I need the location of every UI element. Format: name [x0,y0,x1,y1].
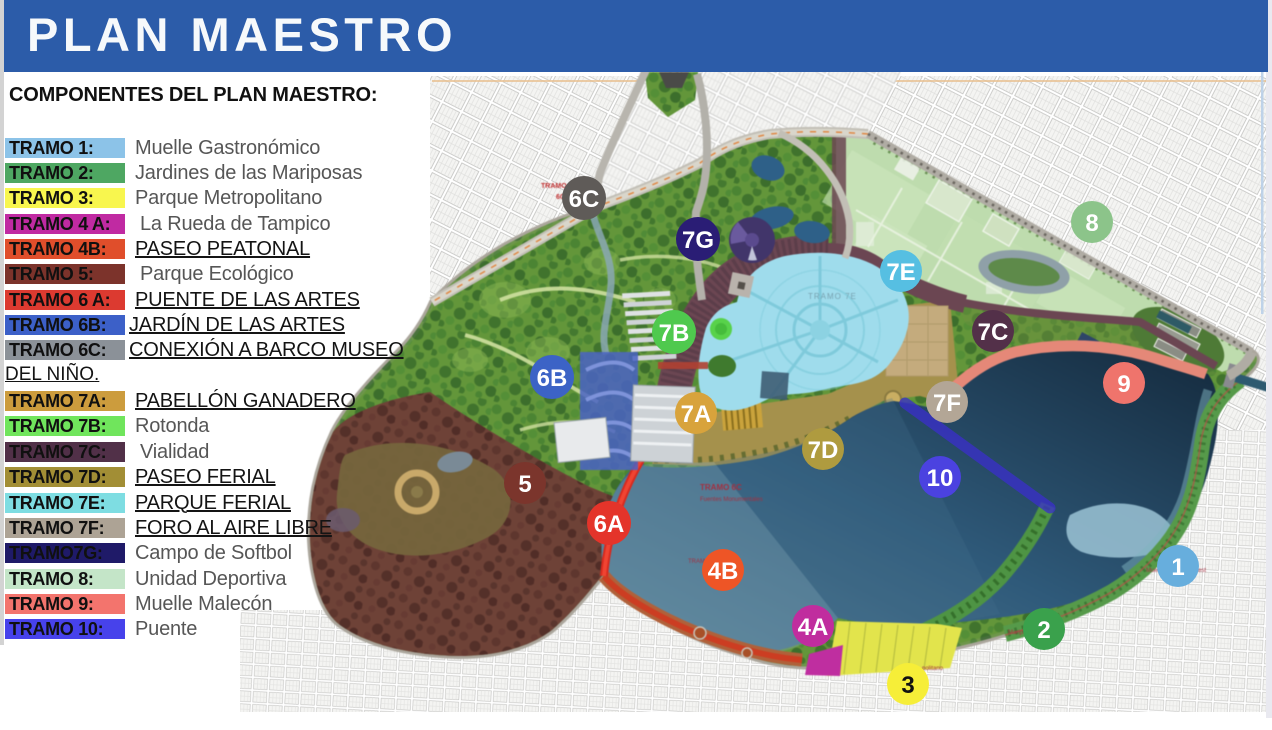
svg-text:2: 2 [1037,617,1050,644]
svg-text:7C: 7C [978,319,1009,346]
svg-text:7A: 7A [681,401,712,428]
svg-text:TRAMO 7E: TRAMO 7E [808,292,857,301]
svg-text:politano: politano [922,666,944,672]
svg-text:7D: 7D [808,437,839,464]
svg-text:3: 3 [901,672,914,699]
svg-text:7G: 7G [682,227,714,254]
svg-text:1: 1 [1171,554,1184,581]
svg-text:6B: 6B [537,365,568,392]
svg-text:7F: 7F [933,390,961,417]
svg-text:10: 10 [927,465,954,492]
svg-text:4A: 4A [798,614,829,641]
svg-text:7B: 7B [659,320,690,347]
svg-text:4B: 4B [708,558,739,585]
svg-text:7E: 7E [886,259,915,286]
svg-text:TRAMO 6C: TRAMO 6C [700,483,742,492]
svg-text:6C: 6C [569,186,600,213]
svg-text:TRAMO: TRAMO [541,183,567,190]
svg-text:5: 5 [518,471,531,498]
svg-text:9: 9 [1117,371,1130,398]
svg-text:Fuentes Monumentales: Fuentes Monumentales [700,497,763,503]
svg-text:6A: 6A [594,511,625,538]
svg-text:8: 8 [1085,210,1098,237]
